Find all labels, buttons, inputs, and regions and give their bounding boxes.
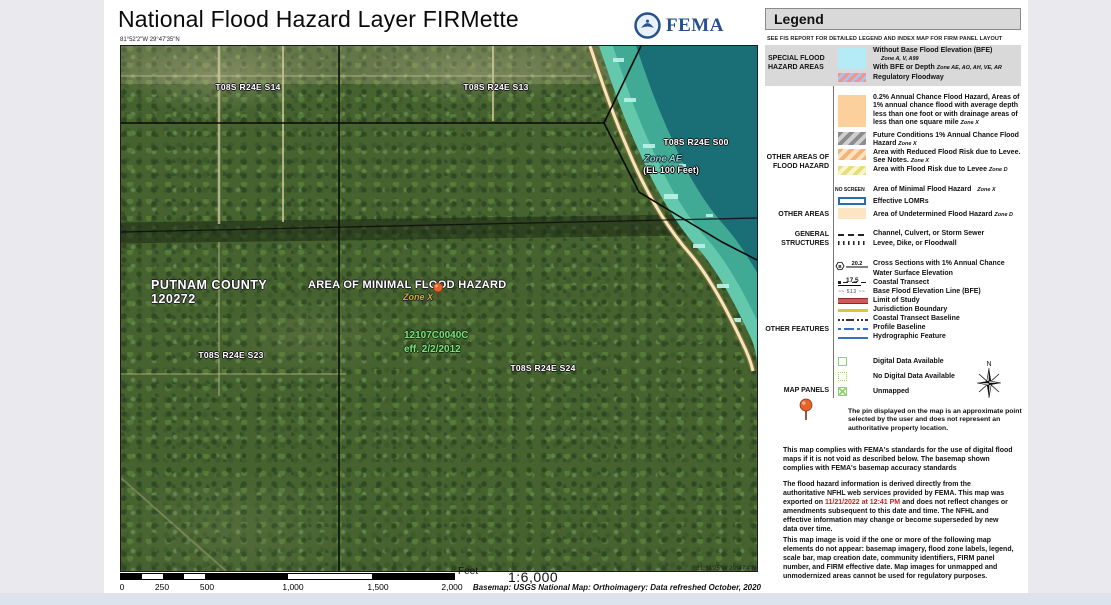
pin-disclaimer: The pin displayed on the map is an appro…: [848, 408, 1024, 433]
coastal-transect-symbol: [838, 281, 867, 284]
standards-note: This map complies with FEMA's standards …: [783, 446, 1014, 473]
water-surface-label: Water Surface Elevation: [873, 270, 1023, 278]
water-surface-symbol: 17.5: [838, 269, 861, 287]
limit-of-study-label: Limit of Study: [873, 297, 1023, 305]
county-label: PUTNAM COUNTY 120272: [151, 278, 267, 306]
legend-section-structures: GENERAL STRUCTURES Channel, Culvert, or …: [765, 228, 1021, 250]
zone-ae-elevation-label: (EL 100 Feet): [643, 165, 699, 175]
flood-02pct-text: 0.2% Annual Chance Flood Hazard, Areas o…: [873, 94, 1023, 127]
legend-panel: Legend SEE FIS REPORT FOR DETAILED LEGEN…: [765, 0, 1023, 593]
scale-tick: 250: [155, 582, 169, 592]
section-label-s00: T08S R24E S00: [663, 137, 728, 147]
levee-label: Levee, Dike, or Floodwall: [873, 240, 1023, 248]
zone-x-label: Zone X: [403, 292, 433, 302]
floodway-label: Regulatory Floodway: [873, 74, 1023, 82]
scale-bar: [120, 573, 455, 580]
export-note: The flood hazard information is derived …: [783, 480, 1014, 535]
svg-text:20.2: 20.2: [852, 261, 863, 267]
scale-segment: [121, 574, 142, 579]
future-conditions-swatch: [838, 132, 866, 145]
map-corner-coordinates-top: 81°52'2"W 29°47'35"N: [120, 37, 180, 43]
flood-02pct-swatch: [838, 95, 866, 127]
levee-line-symbol: [838, 241, 868, 245]
sfha-zone-swatch: [838, 48, 866, 69]
minimal-hazard-label: Area of Minimal Flood Hazard: [873, 186, 971, 193]
map-canvas[interactable]: T08S R24E S14 T08S R24E S13 T08S R24E S0…: [120, 45, 758, 572]
future-conditions-zone: Zone X: [898, 141, 916, 147]
section-label-s13: T08S R24E S13: [463, 82, 528, 92]
lomr-swatch: [838, 197, 866, 205]
cross-section-label: Cross Sections with 1% Annual Chance: [873, 260, 1023, 268]
scale-segment: [163, 574, 184, 579]
bfe-line-label: Base Flood Elevation Line (BFE): [873, 288, 1023, 296]
profile-baseline-label: Profile Baseline: [873, 324, 1023, 332]
map-panels-section-label: MAP PANELS: [765, 387, 829, 396]
levee-risk-label: Area with Flood Risk due to Levee: [873, 166, 987, 173]
fema-logo: FEMA: [634, 12, 724, 39]
legend-section-sfha: SPECIAL FLOOD HAZARD AREAS Without Base …: [765, 45, 1021, 86]
legend-section-features: B 20.2 Cross Sections with 1% Annual Cha…: [765, 258, 1021, 348]
limit-of-study-symbol: [838, 298, 868, 304]
community-id: 120272: [151, 292, 267, 306]
reduced-risk-levee-label: Area with Reduced Flood Risk due to Leve…: [873, 149, 1020, 164]
unmapped-swatch: [838, 387, 847, 396]
scale-segment: [205, 574, 288, 579]
legend-title: Legend: [765, 8, 1021, 30]
map-overlay-graphics: [121, 46, 757, 571]
profile-baseline-symbol: [838, 328, 868, 330]
scale-ticks: 0 250 500 1,000 1,500 2,000: [120, 582, 460, 592]
channel-line-symbol: [838, 234, 868, 236]
bfe-value: 513: [847, 289, 857, 295]
jurisdiction-symbol: [838, 309, 868, 312]
sfha-with-bfe-zones: Zone AE, AO, AH, VE, AR: [937, 65, 1002, 71]
bottom-strip: [0, 593, 1111, 605]
ofh-section-label: OTHER AREAS OF FLOOD HAZARD: [765, 154, 829, 172]
firmette-page: National Flood Hazard Layer FIRMette FEM…: [0, 0, 1111, 605]
sfha-text: Without Base Flood Elevation (BFE) Zone …: [873, 47, 1023, 72]
sfha-no-bfe-zones: Zone A, V, A99: [873, 56, 919, 62]
scale-segment: [372, 574, 454, 579]
firm-effective-date: eff. 2/2/2012: [404, 343, 469, 357]
page-title: National Flood Hazard Layer FIRMette: [118, 6, 519, 33]
transect-baseline-label: Coastal Transect Baseline: [873, 315, 1023, 323]
flood-02pct-label: 0.2% Annual Chance Flood Hazard, Areas o…: [873, 94, 1020, 126]
levee-risk-swatch: [838, 166, 866, 175]
sfha-section-label: SPECIAL FLOOD HAZARD AREAS: [765, 55, 832, 73]
section-label-s14: T08S R24E S14: [215, 82, 280, 92]
scale-tick: 0: [120, 582, 125, 592]
flood-02pct-zone: Zone X: [961, 120, 979, 126]
legend-subtitle: SEE FIS REPORT FOR DETAILED LEGEND AND I…: [767, 36, 1021, 42]
structures-section-label: GENERAL STRUCTURES: [765, 231, 829, 249]
section-label-s24: T08S R24E S24: [510, 363, 575, 373]
channel-label: Channel, Culvert, or Storm Sewer: [873, 230, 1023, 238]
undetermined-text: Area of Undetermined Flood Hazard Zone D: [873, 211, 1023, 219]
other-areas-section-label: OTHER AREAS: [765, 211, 829, 220]
firm-panel-number: 12107C0040C: [404, 329, 469, 343]
county-name: PUTNAM COUNTY: [151, 278, 267, 292]
coastal-transect-label: Coastal Transect: [873, 279, 1023, 287]
minimal-hazard-text: Area of Minimal Flood Hazard Zone X: [873, 186, 1023, 194]
levee-risk-text: Area with Flood Risk due to Levee Zone D: [873, 166, 1023, 174]
section-label-s23: T08S R24E S23: [198, 350, 263, 360]
minimal-flood-hazard-label: AREA OF MINIMAL FLOOD HAZARD: [308, 279, 506, 291]
north-arrow-icon: N: [970, 358, 1008, 400]
location-pin-icon[interactable]: [432, 282, 444, 299]
scale-tick: 500: [200, 582, 214, 592]
scale-unit-label: Feet: [458, 566, 478, 577]
hydrographic-label: Hydrographic Feature: [873, 333, 1023, 341]
hydrographic-symbol: [838, 337, 868, 339]
future-conditions-text: Future Conditions 1% Annual Chance Flood…: [873, 132, 1023, 149]
map-corner-coordinates-bottom: 81°51'25"W 29°47'4"N: [600, 566, 756, 572]
scale-segment: [142, 574, 163, 579]
digital-data-swatch: [838, 357, 847, 366]
inland-roads: [121, 46, 591, 571]
scale-tick: 1,000: [282, 582, 303, 592]
scale-segment: [184, 574, 205, 579]
firm-panel-label: 12107C0040C eff. 2/2/2012: [404, 329, 469, 357]
lomr-label: Effective LOMRs: [873, 198, 1023, 206]
jurisdiction-label: Jurisdiction Boundary: [873, 306, 1023, 314]
features-section-label: OTHER FEATURES: [765, 326, 829, 335]
zone-ae-label: Zone AE: [644, 154, 682, 165]
minimal-hazard-zone: Zone X: [977, 187, 995, 193]
levee-risk-zone: Zone D: [989, 167, 1008, 173]
basemap-attribution: Basemap: USGS National Map: Orthoimagery…: [430, 583, 761, 592]
floodway-swatch: [838, 73, 866, 82]
future-conditions-label: Future Conditions 1% Annual Chance Flood…: [873, 132, 1019, 147]
no-digital-data-swatch: [838, 372, 847, 381]
legend-pin-icon: [798, 398, 814, 422]
legend-section-other-areas: NO SCREEN Area of Minimal Flood Hazard Z…: [765, 185, 1021, 222]
reduced-risk-levee-zone: Zone X: [911, 158, 929, 164]
sfha-with-bfe: With BFE or Depth: [873, 64, 935, 71]
fema-wordmark: FEMA: [666, 15, 724, 37]
undetermined-swatch: [838, 208, 866, 219]
no-screen-swatch: NO SCREEN: [835, 187, 865, 193]
undetermined-zone: Zone D: [994, 212, 1013, 218]
reduced-risk-levee-text: Area with Reduced Flood Risk due to Leve…: [873, 149, 1023, 166]
bfe-line-symbol: ~~ 513 ~~: [838, 289, 865, 295]
sfha-no-bfe: Without Base Flood Elevation (BFE): [873, 47, 992, 54]
scale-segment: [288, 574, 372, 579]
transect-baseline-symbol: [838, 319, 868, 321]
export-date: 11/21/2022 at 12:41 PM: [825, 499, 900, 506]
svg-text:N: N: [986, 361, 991, 368]
reduced-risk-levee-swatch: [838, 149, 866, 160]
legend-section-ofh: 0.2% Annual Chance Flood Hazard, Areas o…: [765, 92, 1021, 178]
void-note: This map image is void if the one or mor…: [783, 536, 1014, 581]
fema-seal-icon: [634, 12, 661, 39]
undetermined-label: Area of Undetermined Flood Hazard: [873, 211, 992, 218]
scale-tick: 1,500: [367, 582, 388, 592]
